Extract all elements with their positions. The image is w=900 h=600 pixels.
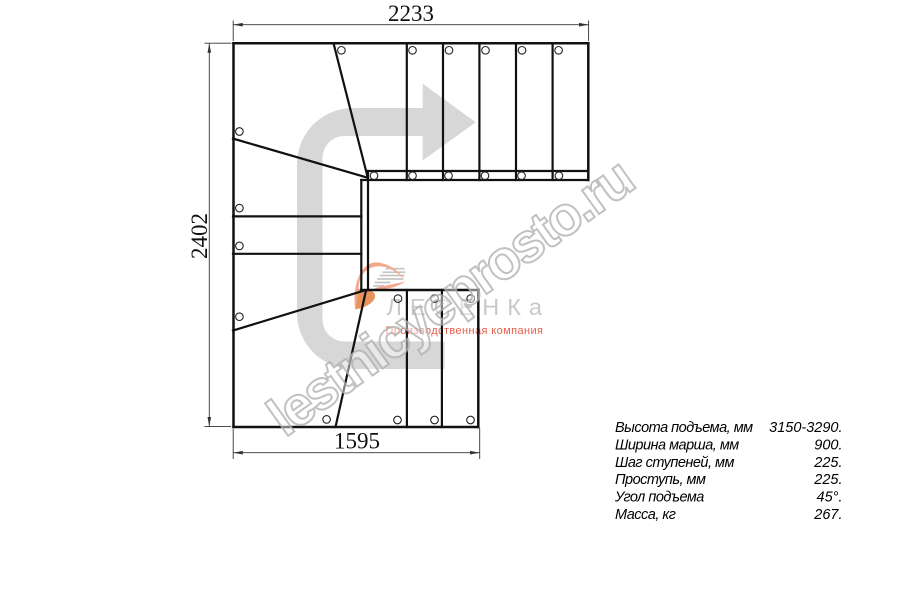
- svg-text:2402: 2402: [187, 213, 212, 259]
- svg-text:Ширина марша, мм: Ширина марша, мм: [615, 437, 739, 453]
- svg-text:1595: 1595: [334, 429, 380, 454]
- svg-text:Масса, кг: Масса, кг: [615, 507, 676, 523]
- svg-text:3150-3290.: 3150-3290.: [769, 420, 842, 436]
- svg-text:45°.: 45°.: [817, 489, 843, 505]
- svg-text:Проступь, мм: Проступь, мм: [615, 472, 706, 488]
- svg-text:Высота подъема, мм: Высота подъема, мм: [615, 420, 753, 436]
- svg-text:267.: 267.: [813, 507, 842, 523]
- svg-text:900.: 900.: [814, 437, 842, 453]
- svg-text:Угол подъема: Угол подъема: [614, 489, 704, 505]
- svg-text:2233: 2233: [388, 1, 434, 26]
- svg-text:225.: 225.: [813, 472, 842, 488]
- svg-text:Шаг ступеней, мм: Шаг ступеней, мм: [615, 455, 734, 471]
- svg-text:225.: 225.: [813, 455, 842, 471]
